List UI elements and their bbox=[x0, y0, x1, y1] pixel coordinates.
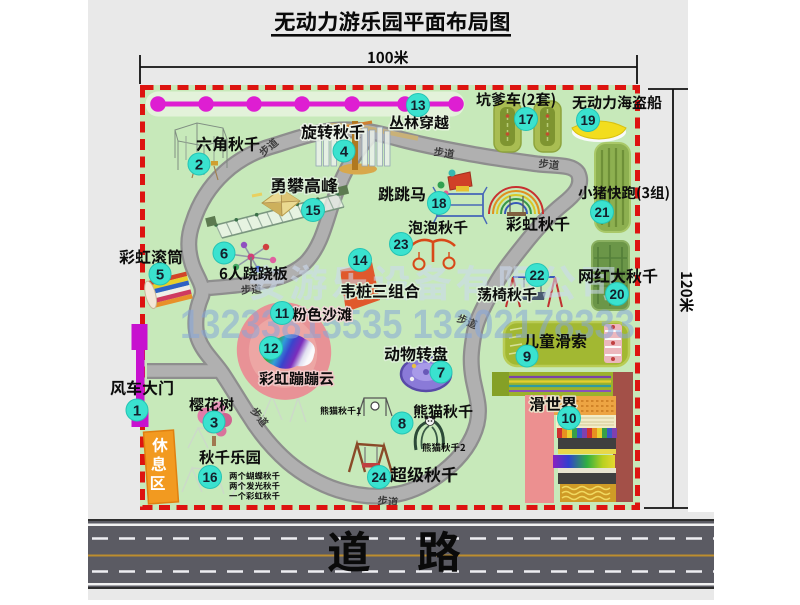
svg-text:3: 3 bbox=[210, 414, 218, 431]
svg-text:1: 1 bbox=[133, 402, 141, 419]
svg-text:18: 18 bbox=[431, 196, 447, 211]
svg-text:8: 8 bbox=[398, 415, 406, 432]
svg-text:23: 23 bbox=[393, 237, 409, 252]
svg-text:7: 7 bbox=[437, 364, 445, 381]
svg-text:24: 24 bbox=[371, 470, 387, 485]
svg-text:10: 10 bbox=[561, 411, 576, 426]
svg-text:9: 9 bbox=[523, 348, 531, 365]
svg-text:13: 13 bbox=[410, 98, 426, 113]
svg-text:16: 16 bbox=[202, 470, 218, 485]
svg-text:21: 21 bbox=[594, 205, 610, 220]
svg-text:13233815535 13202178333: 13233815535 13202178333 bbox=[180, 301, 635, 347]
svg-text:4: 4 bbox=[340, 143, 349, 160]
svg-text:2: 2 bbox=[195, 156, 203, 173]
svg-text:6: 6 bbox=[220, 245, 228, 262]
svg-text:12: 12 bbox=[263, 341, 278, 356]
svg-text:14: 14 bbox=[352, 253, 368, 268]
svg-text:5: 5 bbox=[156, 266, 164, 283]
svg-text:15: 15 bbox=[305, 203, 321, 218]
svg-text:22: 22 bbox=[529, 268, 544, 283]
svg-text:20: 20 bbox=[609, 287, 624, 302]
svg-text:19: 19 bbox=[580, 113, 595, 128]
svg-text:11: 11 bbox=[275, 306, 290, 321]
svg-text:17: 17 bbox=[518, 112, 533, 127]
